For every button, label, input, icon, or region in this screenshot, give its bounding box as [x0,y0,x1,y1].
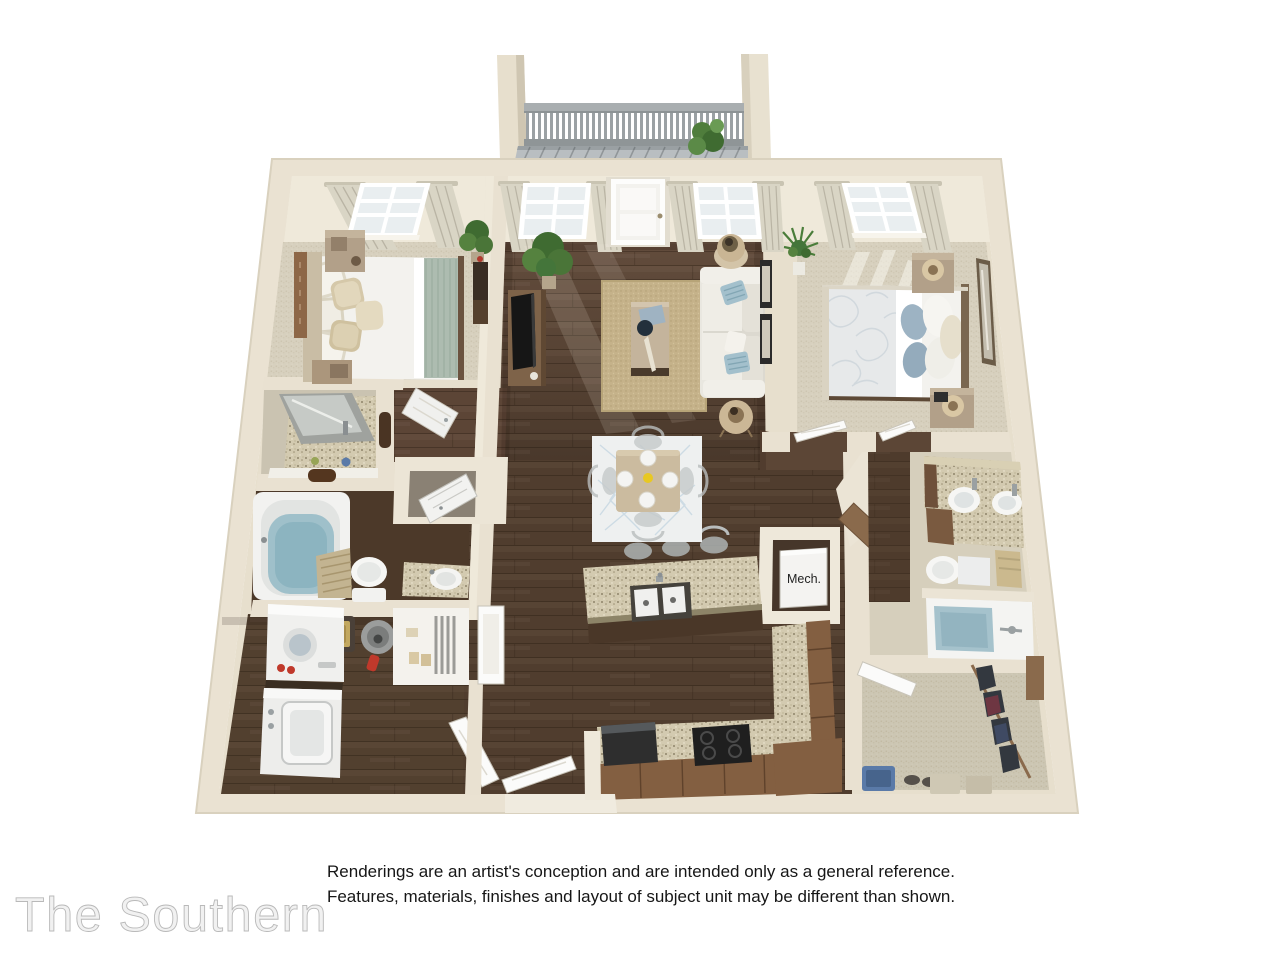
svg-text:Renderings are an artist's con: Renderings are an artist's conception an… [327,862,955,881]
svg-text:The Southern: The Southern [15,888,328,942]
svg-text:Mech.: Mech. [787,572,821,586]
svg-text:Features, materials, finishes: Features, materials, finishes and layout… [327,887,955,906]
